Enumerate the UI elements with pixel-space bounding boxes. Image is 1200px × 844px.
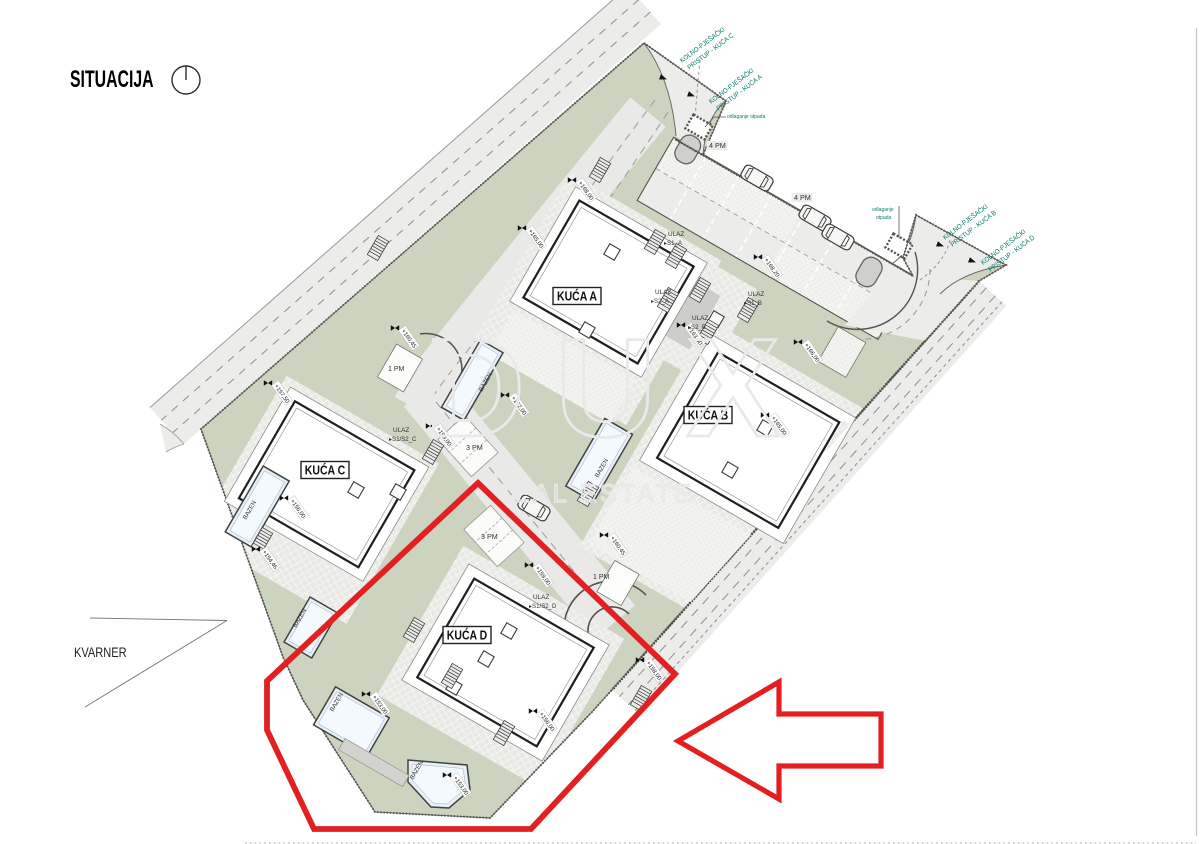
svg-text:▸S1_B: ▸S1_B xyxy=(744,300,762,307)
svg-text:ULAZ: ULAZ xyxy=(393,427,409,434)
svg-text:▸S1/S2_C: ▸S1/S2_C xyxy=(389,436,417,443)
svg-text:KUĆA C: KUĆA C xyxy=(305,464,346,478)
svg-text:REAL ESTATE: REAL ESTATE xyxy=(491,480,694,508)
svg-text:4 PM: 4 PM xyxy=(709,141,726,150)
svg-text:ULAZ: ULAZ xyxy=(533,594,549,601)
svg-text:4 PM: 4 PM xyxy=(794,193,811,202)
svg-text:SITUACIJA: SITUACIJA xyxy=(70,67,154,93)
svg-text:DUX: DUX xyxy=(424,309,810,466)
svg-text:otpada: otpada xyxy=(876,215,892,221)
svg-text:odlaganje: odlaganje xyxy=(872,207,894,213)
svg-text:KVARNER: KVARNER xyxy=(74,645,127,660)
svg-text:1 PM: 1 PM xyxy=(593,574,610,581)
svg-text:odlaganje otpada: odlaganje otpada xyxy=(727,114,766,120)
svg-text:ULAZ: ULAZ xyxy=(668,231,684,238)
svg-text:ULAZ: ULAZ xyxy=(748,291,764,298)
svg-text:▸S1/S2_D: ▸S1/S2_D xyxy=(529,603,557,610)
svg-text:ULAZ: ULAZ xyxy=(655,289,671,296)
svg-text:3 PM: 3 PM xyxy=(481,532,498,541)
svg-text:KUĆA A: KUĆA A xyxy=(557,290,598,304)
svg-text:KUĆA D: KUĆA D xyxy=(447,629,487,643)
svg-text:1 PM: 1 PM xyxy=(388,366,405,373)
svg-text:▸S2_A: ▸S2_A xyxy=(651,298,670,305)
svg-text:▸S1_A: ▸S1_A xyxy=(664,240,683,247)
